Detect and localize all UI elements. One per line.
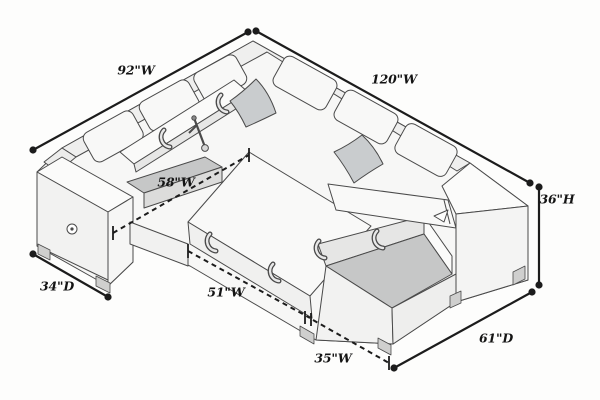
dimension-label-overall-height: 36"H xyxy=(540,192,575,207)
power-outlet-icon xyxy=(67,224,77,234)
dimension-label-left-arm-depth: 34"D xyxy=(40,279,74,294)
dimension-label-right-depth: 61"D xyxy=(479,331,513,346)
dimension-label-front-right-width: 35"W xyxy=(314,351,351,366)
dimension-label-front-left-width: 51"W xyxy=(207,285,244,300)
dimension-diagram: 92"W 120"W 58"W 36"H 34"D 51"W 35"W 61"D xyxy=(0,0,600,400)
dimension-label-seat-width: 58"W xyxy=(157,175,194,190)
dimension-label-back-left-width: 92"W xyxy=(117,63,154,78)
dimension-label-back-right-width: 120"W xyxy=(371,72,417,87)
sofa-body xyxy=(37,41,528,355)
